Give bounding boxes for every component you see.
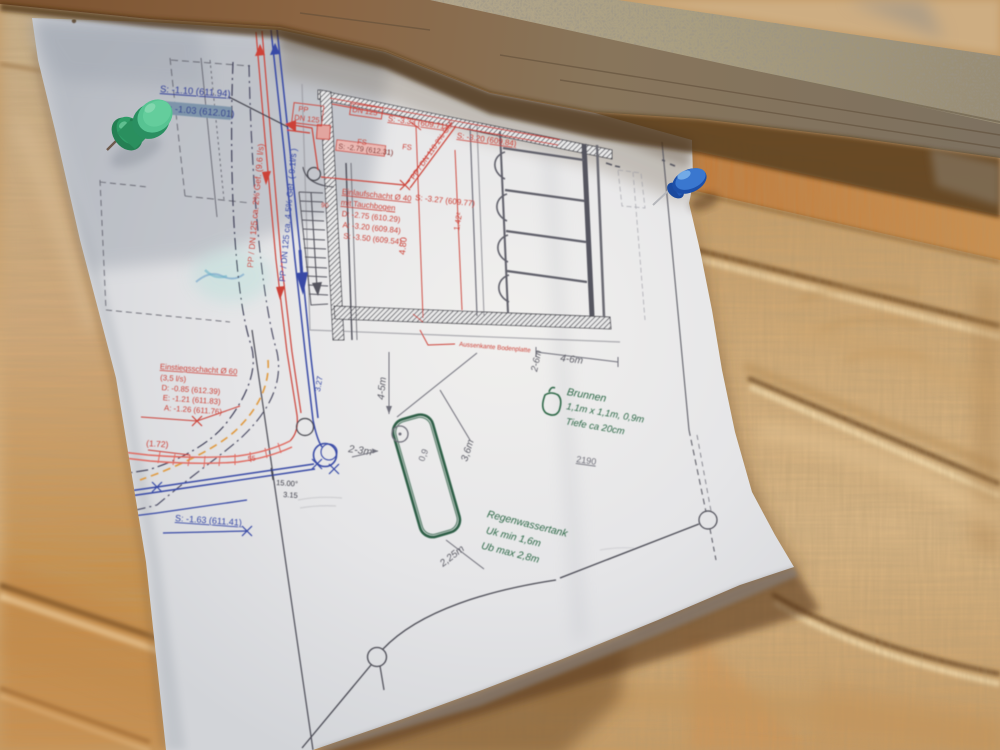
svg-text:55: 55 [248,455,256,463]
svg-text:90: 90 [321,202,329,210]
svg-text:3.15: 3.15 [283,490,298,500]
svg-text:4-5m: 4-5m [376,377,389,401]
svg-text:(1.72): (1.72) [146,438,169,450]
svg-text:FS: FS [402,142,413,152]
svg-text:15.00°: 15.00° [276,478,298,488]
svg-text:FS: FS [357,137,368,147]
svg-text:(3,5 l/s): (3,5 l/s) [160,373,187,384]
